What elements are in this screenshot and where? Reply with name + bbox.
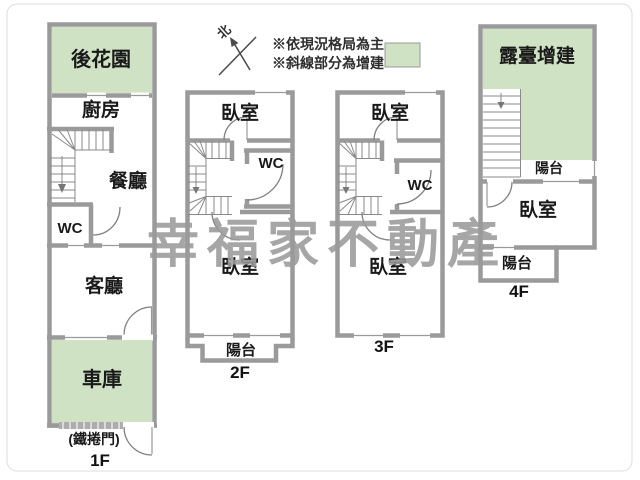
room-label-balcony-2f: 陽台 (226, 341, 256, 359)
room-label-living: 客廳 (85, 274, 123, 297)
room-label-wc-2f: WC (259, 155, 284, 172)
room-label-bedroom-4f: 臥室 (519, 198, 557, 221)
room-label-bedroom-3f-top: 臥室 (371, 101, 409, 124)
room-label-balcony-4f-top: 陽台 (535, 160, 563, 176)
floor-label-3f: 3F (374, 337, 394, 356)
room-label-wc-3f: WC (408, 177, 433, 194)
room-label-kitchen: 廚房 (82, 98, 120, 121)
room-label-wc-1f: WC (58, 220, 83, 237)
floorplan-svg: 後花園 廚房 餐廳 WC 客廳 車庫 (鐵捲門) 1F 臥室 W (0, 0, 640, 480)
floor-label-4f: 4F (509, 282, 529, 301)
room-label-bedroom-2f-top: 臥室 (221, 101, 259, 124)
floorplan-canvas: 後花園 廚房 餐廳 WC 客廳 車庫 (鐵捲門) 1F 臥室 W (0, 0, 640, 480)
room-label-terrace: 露臺增建 (499, 44, 575, 67)
floor-label-2f: 2F (230, 363, 250, 382)
watermark-text: 幸福家不動產 (147, 216, 507, 274)
room-label-dining: 餐廳 (109, 169, 147, 192)
room-label-garden: 後花園 (71, 47, 131, 71)
room-label-garage: 車庫 (82, 367, 122, 391)
floorplan-1f: 後花園 廚房 餐廳 WC 客廳 車庫 (鐵捲門) 1F (47, 25, 157, 471)
legend-note-1: ※依現況格局為主 (272, 36, 384, 52)
rolling-door-note: (鐵捲門) (68, 431, 119, 447)
legend-note-2: ※斜線部分為增建 (272, 55, 384, 71)
floor-label-1f: 1F (90, 451, 110, 470)
legend-addition-swatch (385, 43, 420, 67)
